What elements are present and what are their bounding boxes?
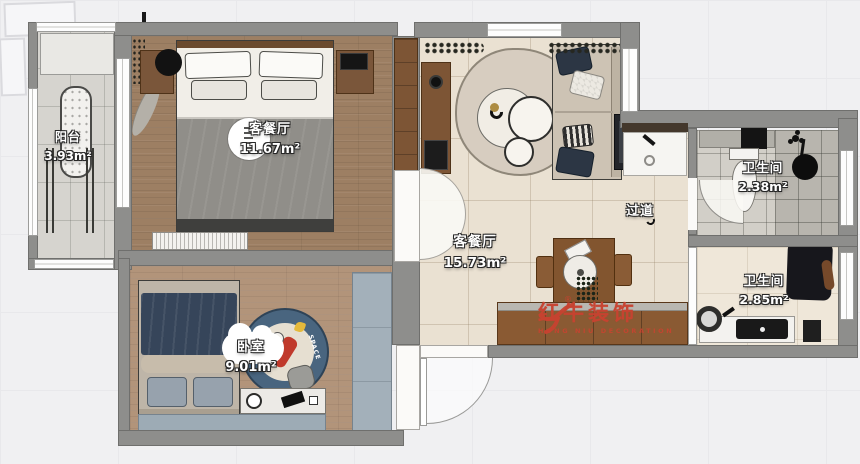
registered-mark: ® [564,295,572,304]
outside-area [640,0,860,112]
wall [488,345,858,358]
bedside-lamp [155,49,182,76]
bed-headboard [177,41,333,48]
sofa-pillow-knit [569,69,606,100]
coffee-table-small [504,137,534,167]
gold-tray [490,103,499,112]
bed-pillow [147,377,187,407]
room-label-balcony: 阳台 3.93m² [30,128,106,165]
door-opening [688,178,697,230]
room-area: 15.73m² [420,253,530,274]
entry-door-panel [420,358,427,426]
wall [688,235,858,247]
room-label-bathroom-top: 卫生间 2.38m² [722,158,804,197]
room-area: 11.67m² [220,140,320,160]
room-label-bathroom-bottom: 卫生间 2.85m² [722,271,806,310]
wall-vent-tick [142,12,146,22]
wash-basin-counter [623,132,687,176]
window [840,150,854,226]
room-name: 阳台 [30,128,106,147]
room-name: 卫生间 [722,158,804,177]
wardrobe-second-bedroom [352,272,392,432]
desk-lamp [246,393,262,409]
door-opening [396,345,420,430]
room-name: 客餐厅 [420,232,530,253]
nook-shelf-dark [622,123,688,132]
sink-drain-dot [760,327,765,332]
tv-media-box [424,140,448,170]
sofa-seat-split [555,111,613,113]
window [36,22,116,32]
wall [118,430,404,446]
wall [114,22,398,36]
sofa-pillow-striped [562,123,594,148]
window [34,259,114,269]
window [840,252,854,320]
bed-pillow [261,80,317,100]
room-area: 3.93m² [30,147,106,166]
bathroom-cabinet-dark [741,128,767,149]
room-area: 2.85m² [722,290,806,309]
tv-small [340,53,368,70]
room-label-hallway: 过道 [608,202,672,222]
room-name: 过道 [608,202,672,222]
coffee-table-large [508,96,554,142]
bathroom-item-dark [803,320,821,342]
room-area: 2.38m² [722,177,804,196]
window [487,23,562,37]
bed-foot-blanket [177,219,333,231]
room-name: 卫生间 [722,271,806,290]
room-label-second-bedroom: 卧室 9.01m² [203,338,299,378]
room-area: 9.01m² [203,358,299,378]
wall [118,258,130,446]
bed-pillow [185,51,252,79]
window [116,58,130,208]
wardrobe-master-bedroom [394,38,418,172]
dresser [152,232,248,250]
shower-flower-icon [792,135,799,142]
wall [118,250,396,266]
room-name: 卧室 [203,338,299,358]
balcony-cabinet [40,33,114,75]
entry-door-swing [427,358,493,424]
hongniu-bull-logo-icon: ® [538,299,576,337]
entry-door-opening [420,345,488,358]
neighbor-outline [0,38,27,97]
dining-chair-left [536,256,554,288]
vanity-sink [736,319,788,339]
sofa-pillow-navy [555,146,595,178]
bed-pillow [191,80,247,100]
brand-watermark: ® 红牛装饰 HONG NIU DECORATION [538,297,698,341]
room-label-master-bedroom: 客餐厅 11.67m² [220,120,320,160]
basin-drain [644,155,655,166]
window [622,48,638,112]
dining-chair-right [614,254,632,286]
plant-garland [424,42,484,54]
plant-garland [548,42,630,54]
bed-pillow [193,377,233,407]
room-label-living-dining: 客餐厅 15.73m² [420,232,530,274]
floor-plan-canvas: SPACE [0,0,860,464]
tv-speaker [429,75,443,89]
plate-center [577,269,584,276]
sofa [552,44,622,180]
bed-pillow [259,51,324,79]
washing-machine [696,306,722,332]
door-opening [394,170,420,262]
desk-accessory [309,396,318,405]
room-name: 客餐厅 [220,120,320,140]
